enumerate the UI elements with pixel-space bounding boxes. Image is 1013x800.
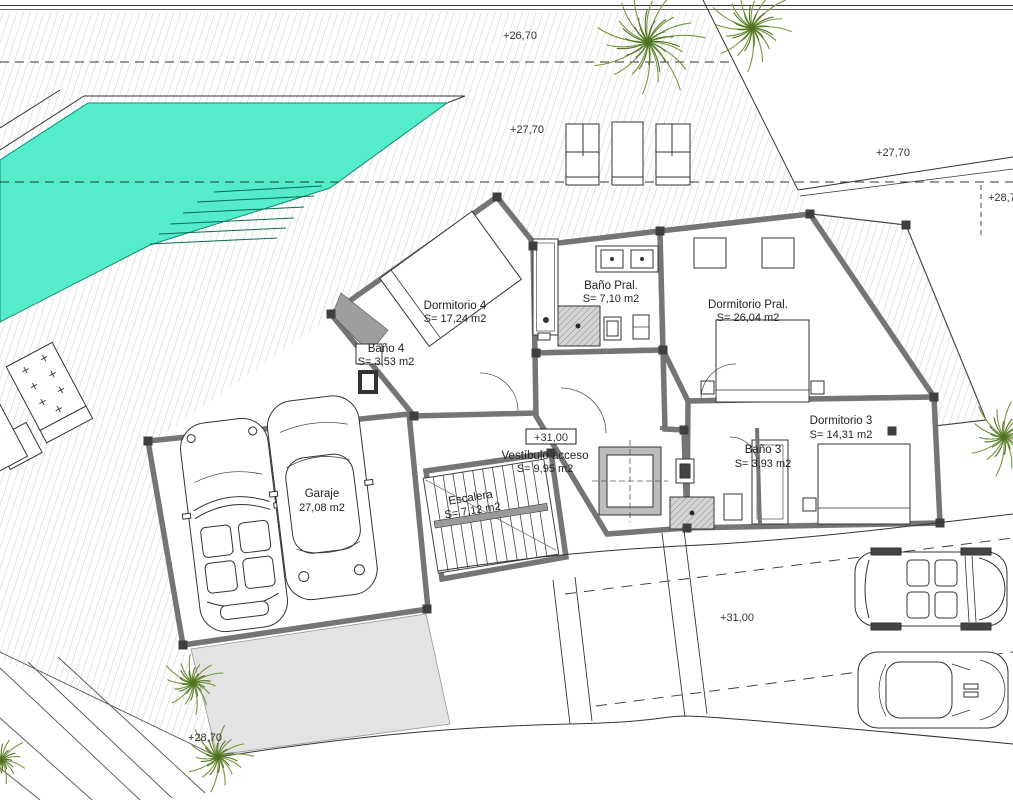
label-dormitorio-4: Dormitorio 4: [424, 300, 487, 312]
street-car-convertible: [855, 548, 1007, 630]
stairs: [423, 459, 559, 573]
label-dormitorio-3: Dormitorio 3: [810, 415, 873, 427]
sun-lounger: [612, 122, 643, 185]
street-car-coupe: [858, 652, 1008, 728]
sun-loungers: [566, 122, 690, 185]
label-dormitorio-pral: Dormitorio Pral.: [708, 299, 788, 311]
area-vestibulo: S= 9,95 m2: [517, 463, 574, 475]
label-bano-pral: Baño Pral.: [584, 280, 638, 292]
level-top: +26,70: [503, 30, 537, 42]
floor-plan-drawing: +26,70 +27,70 +27,70 +28,7 +31,00 +31,00…: [0, 0, 1013, 800]
label-garaje: Garaje: [305, 488, 340, 500]
area-bano-3: S= 3,93 m2: [735, 458, 792, 470]
label-bano-4: Baño 4: [368, 343, 405, 355]
sun-lounger: [656, 124, 690, 185]
sun-lounger: [566, 124, 599, 185]
area-bano-4: S= 3,53 m2: [358, 356, 415, 368]
area-dormitorio-4: S= 17,24 m2: [424, 313, 487, 325]
level-pool-deck: +27,70: [510, 124, 544, 136]
label-vestibulo: Vestíbulo acceso: [502, 450, 589, 462]
floor-plan-canvas: +26,70 +27,70 +27,70 +28,7 +31,00 +31,00…: [0, 0, 1013, 800]
level-entry: +31,00: [534, 432, 568, 444]
label-bano-3: Baño 3: [745, 444, 781, 456]
level-right-edge: +28,7: [988, 192, 1013, 204]
area-garaje: 27,08 m2: [299, 502, 345, 514]
area-bano-pral: S= 7,10 m2: [583, 293, 640, 305]
level-upper-right: +27,70: [876, 147, 910, 159]
level-lower-left: +28,70: [188, 732, 222, 744]
area-dormitorio-3: S= 14,31 m2: [810, 429, 873, 441]
area-dormitorio-pral: S= 26,04 m2: [717, 312, 780, 324]
level-street: +31,00: [720, 612, 754, 624]
elevator: [592, 440, 668, 522]
